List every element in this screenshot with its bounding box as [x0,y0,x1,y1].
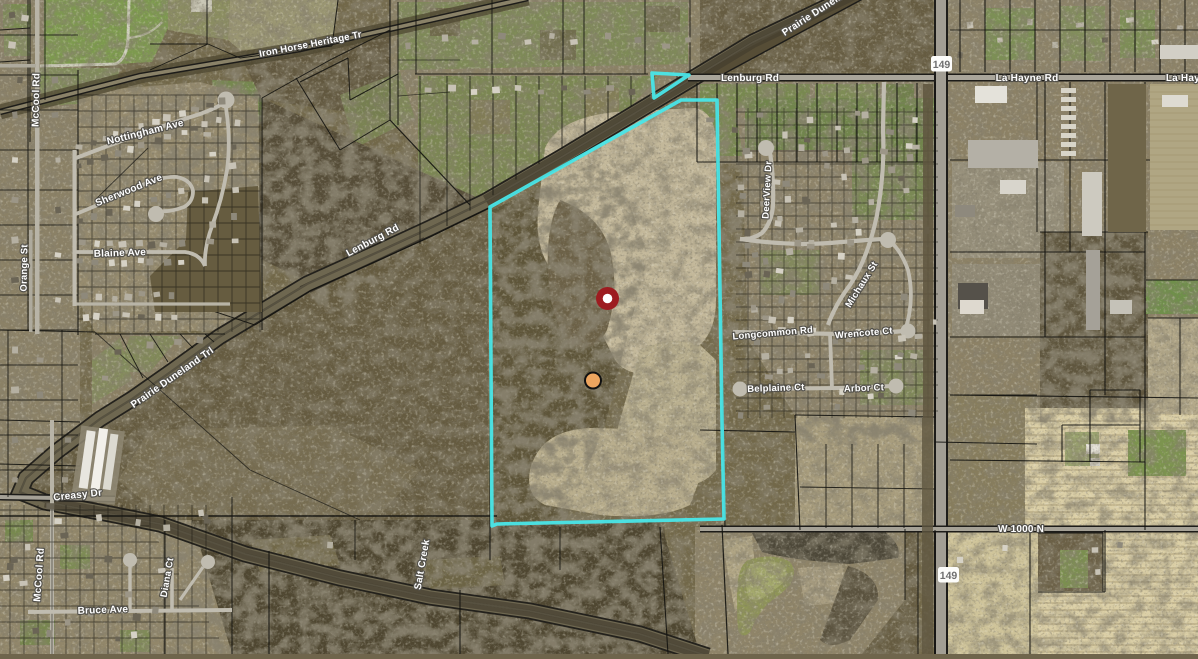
svg-text:149: 149 [940,570,958,582]
svg-text:Bruce Ave: Bruce Ave [77,604,128,617]
svg-text:Arbor Ct: Arbor Ct [844,382,885,394]
svg-text:149: 149 [933,59,951,71]
svg-text:Belplaine Ct: Belplaine Ct [747,382,805,395]
svg-text:McCool Rd: McCool Rd [31,73,43,127]
svg-text:Blaine Ave: Blaine Ave [94,247,147,260]
svg-text:W 1000 N: W 1000 N [998,524,1044,535]
svg-text:La Hayn: La Hayn [1166,73,1198,84]
svg-text:Lenburg Rd: Lenburg Rd [721,73,779,84]
svg-text:Orange St: Orange St [19,244,31,292]
svg-text:La Hayne Rd: La Hayne Rd [996,73,1059,84]
